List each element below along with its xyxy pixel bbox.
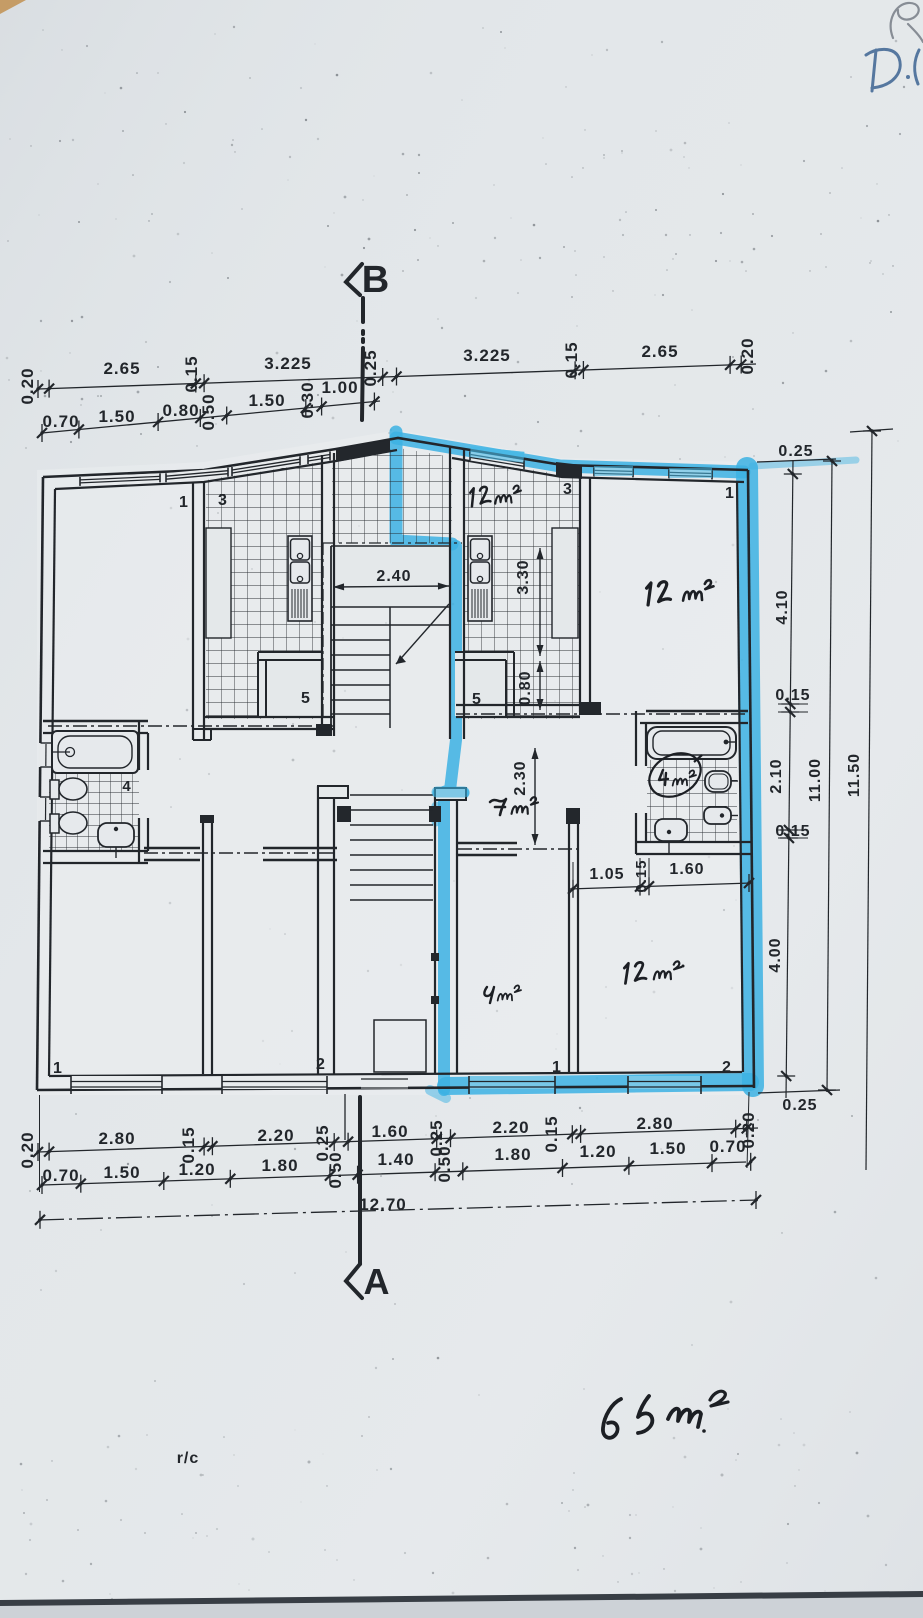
svg-text:1: 1 (552, 1059, 562, 1076)
svg-text:0.20: 0.20 (18, 367, 37, 404)
svg-text:1.20: 1.20 (178, 1160, 215, 1179)
svg-text:1.60: 1.60 (371, 1122, 408, 1141)
svg-text:3.30: 3.30 (515, 559, 532, 594)
svg-text:2.30: 2.30 (512, 760, 529, 795)
svg-text:2.80: 2.80 (636, 1114, 673, 1133)
svg-text:0.80: 0.80 (517, 670, 534, 705)
svg-text:2.10: 2.10 (768, 758, 785, 793)
svg-text:1.50: 1.50 (98, 407, 135, 426)
svg-text:0.15: 0.15 (542, 1115, 561, 1152)
svg-text:11.00: 11.00 (807, 758, 824, 802)
svg-text:4: 4 (122, 778, 131, 795)
svg-text:0.25: 0.25 (782, 1097, 817, 1114)
svg-text:0.50: 0.50 (326, 1151, 345, 1188)
svg-text:2.80: 2.80 (98, 1129, 135, 1148)
svg-text:0.20: 0.20 (18, 1131, 37, 1168)
svg-text:2.40: 2.40 (376, 568, 411, 585)
svg-text:11.50: 11.50 (846, 753, 863, 797)
svg-text:r/c: r/c (177, 1450, 200, 1467)
svg-text:0.80: 0.80 (162, 401, 199, 420)
svg-text:0.15: 0.15 (775, 687, 810, 704)
svg-text:0.15: 0.15 (775, 823, 810, 840)
svg-text:3: 3 (218, 492, 228, 509)
svg-text:1.20: 1.20 (579, 1142, 616, 1161)
svg-text:4.00: 4.00 (767, 937, 784, 972)
svg-text:3.225: 3.225 (463, 346, 511, 365)
svg-text:A: A (364, 1261, 391, 1302)
svg-text:1.80: 1.80 (494, 1145, 531, 1164)
svg-text:1.50: 1.50 (649, 1139, 686, 1158)
svg-text:2: 2 (316, 1056, 326, 1073)
svg-text:2.20: 2.20 (492, 1118, 529, 1137)
svg-text:2.20: 2.20 (257, 1126, 294, 1145)
svg-text:1.50: 1.50 (103, 1163, 140, 1182)
svg-text:3.225: 3.225 (264, 354, 312, 373)
svg-text:0.70: 0.70 (42, 1166, 79, 1185)
svg-text:1.50: 1.50 (248, 391, 285, 410)
svg-text:1.05: 1.05 (589, 866, 624, 883)
svg-text:1: 1 (179, 494, 189, 511)
svg-text:2.65: 2.65 (641, 342, 678, 361)
svg-text:1.40: 1.40 (377, 1150, 414, 1169)
svg-text:1.80: 1.80 (261, 1156, 298, 1175)
svg-text:2.65: 2.65 (103, 359, 140, 378)
svg-text:0.70: 0.70 (42, 412, 79, 431)
svg-text:1: 1 (53, 1060, 63, 1077)
svg-text:0.15: 0.15 (633, 859, 650, 892)
svg-text:0.50: 0.50 (435, 1145, 454, 1182)
svg-text:1.00: 1.00 (321, 378, 358, 397)
svg-text:5: 5 (472, 691, 482, 708)
svg-text:0.25: 0.25 (778, 443, 813, 460)
svg-text:5: 5 (301, 690, 311, 707)
svg-text:0.70: 0.70 (709, 1137, 746, 1156)
svg-text:3: 3 (563, 481, 573, 498)
svg-text:B: B (362, 259, 390, 301)
svg-text:4.10: 4.10 (774, 589, 791, 624)
svg-text:0.15: 0.15 (179, 1126, 198, 1163)
svg-text:1: 1 (725, 485, 735, 502)
svg-text:0.20: 0.20 (738, 337, 757, 374)
svg-text:1.60: 1.60 (669, 861, 704, 878)
svg-text:0.15: 0.15 (562, 341, 581, 378)
svg-text:0.50: 0.50 (199, 393, 218, 430)
svg-text:0.15: 0.15 (182, 355, 201, 392)
svg-text:2: 2 (722, 1059, 732, 1076)
svg-text:12.70: 12.70 (359, 1195, 407, 1214)
svg-text:0.30: 0.30 (298, 381, 317, 418)
